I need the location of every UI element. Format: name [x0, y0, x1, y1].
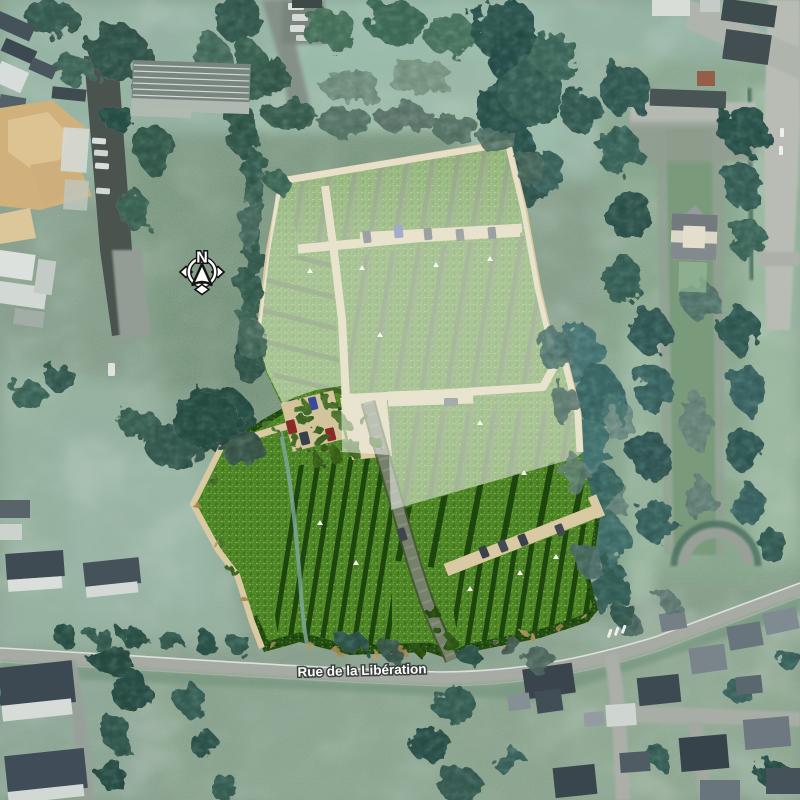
svg-text:N: N — [196, 250, 208, 267]
